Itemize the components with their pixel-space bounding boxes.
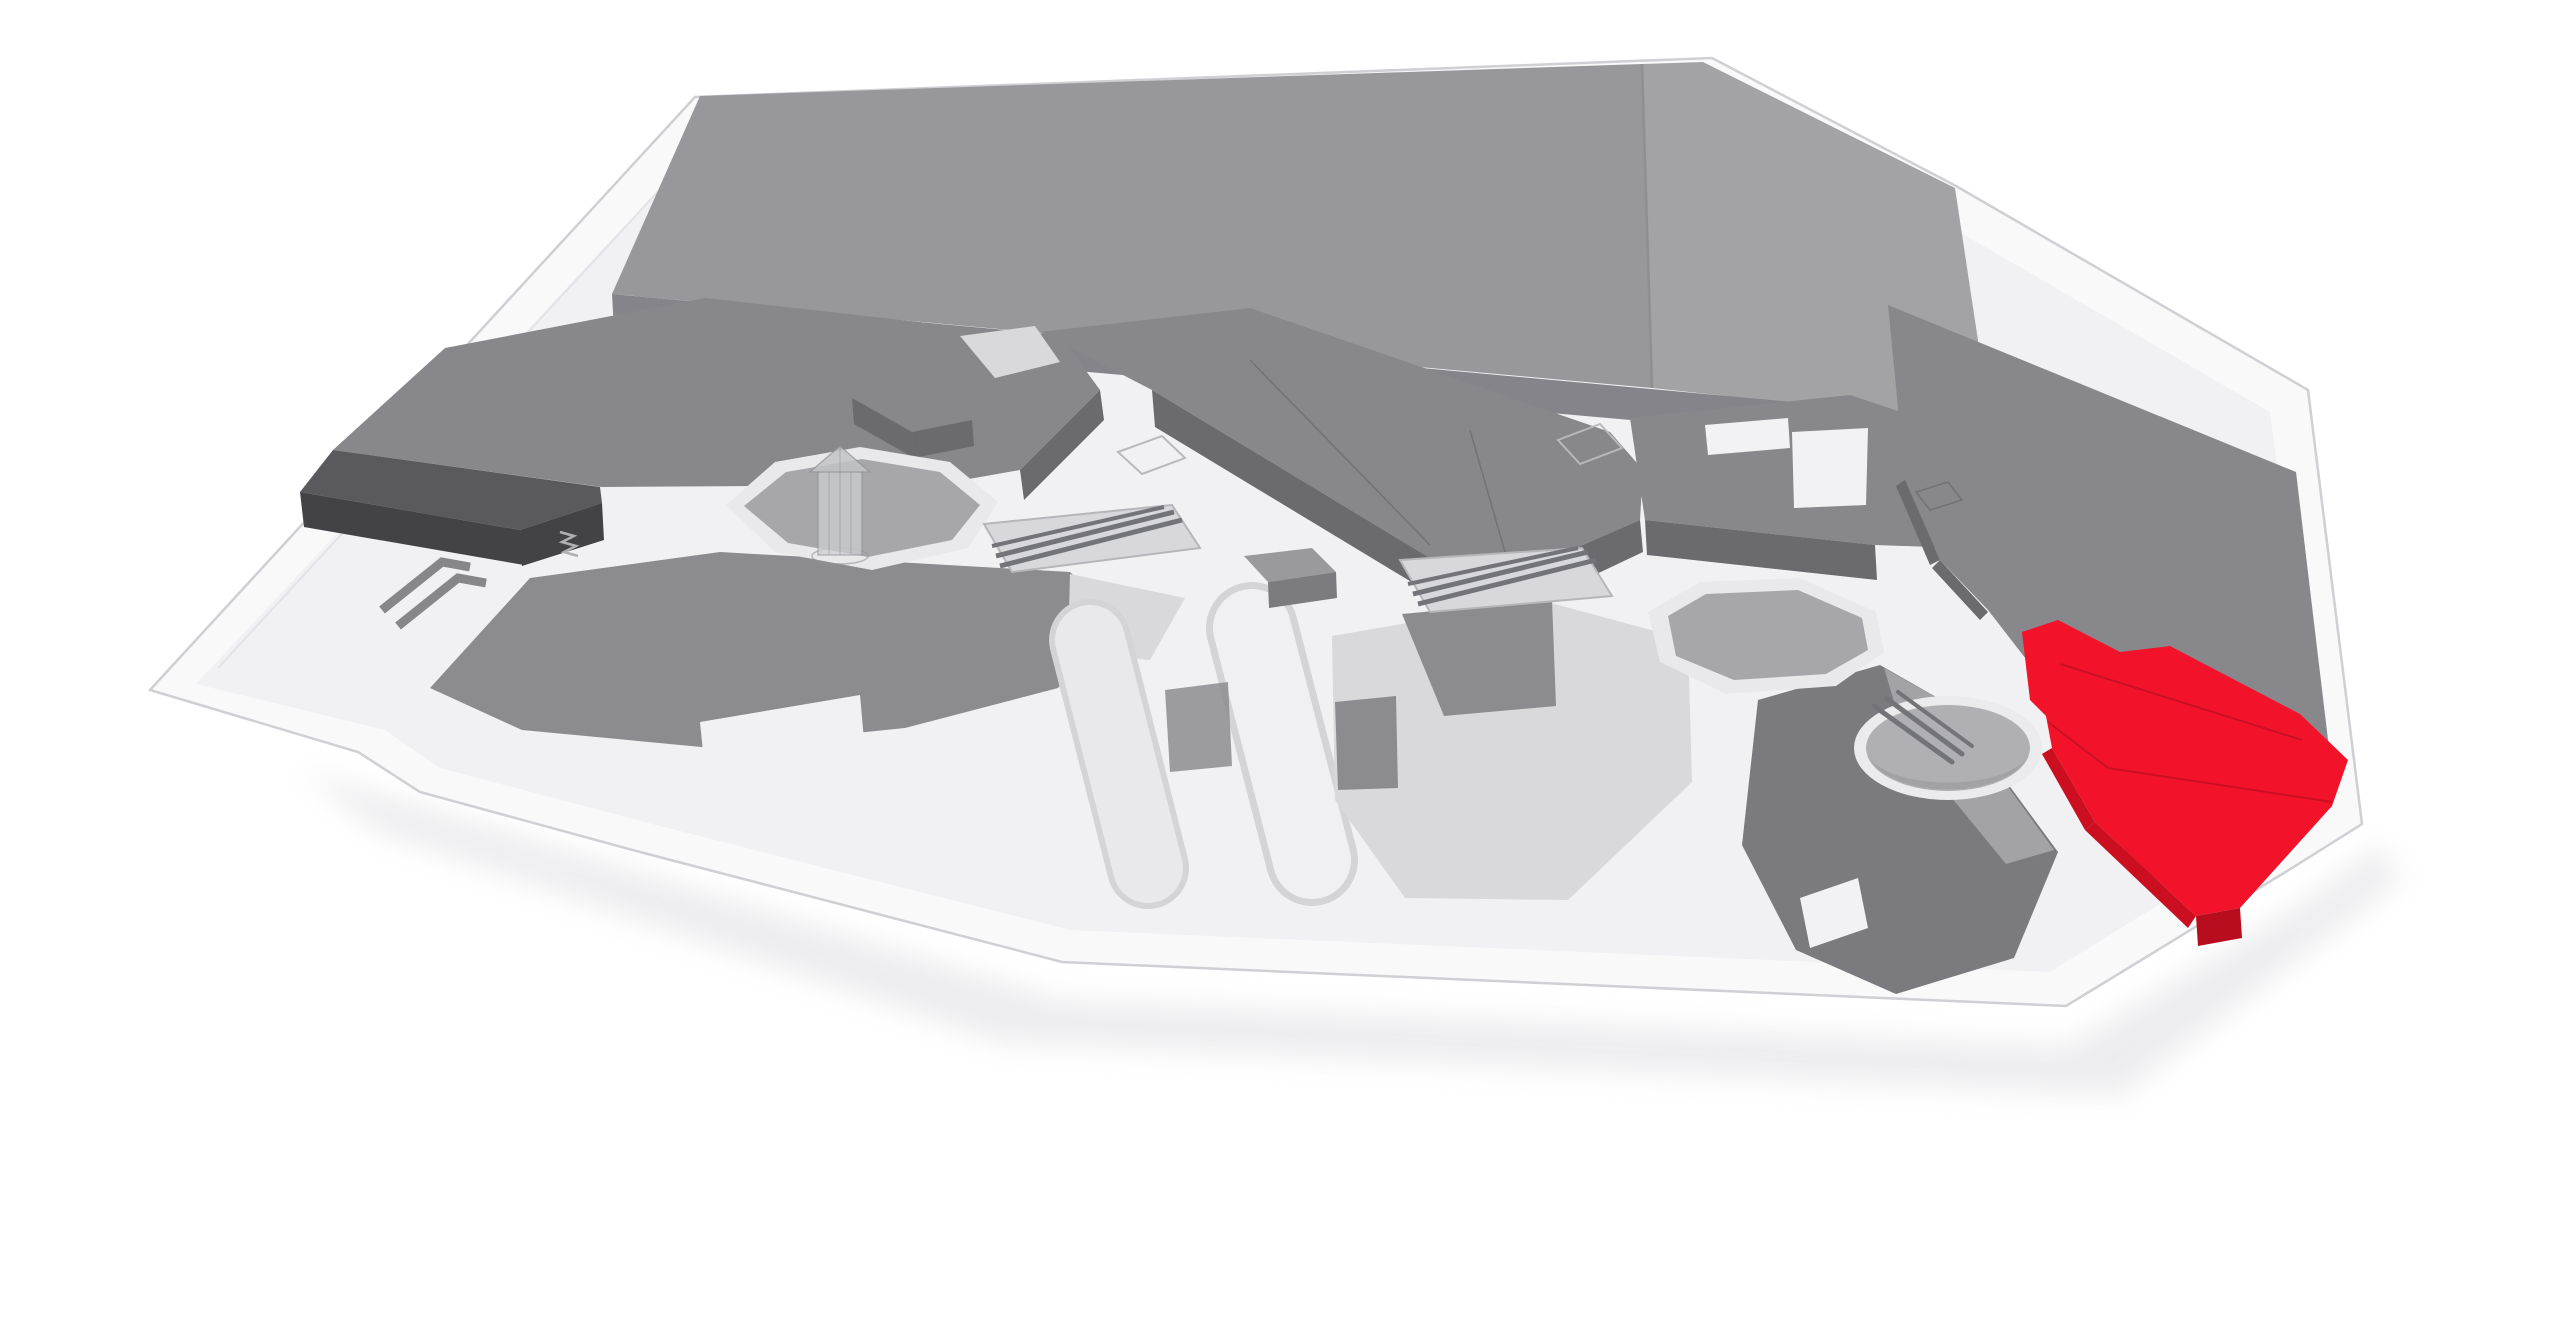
pill-gap-patch (1165, 682, 1232, 772)
mall-3d-map (0, 0, 2560, 1334)
front-center-gray-patch-2[interactable] (1335, 696, 1398, 790)
glass-gazebo (810, 446, 870, 564)
mall-map-viewport (0, 0, 2560, 1334)
right-wedge-cutout-2 (1792, 428, 1868, 508)
